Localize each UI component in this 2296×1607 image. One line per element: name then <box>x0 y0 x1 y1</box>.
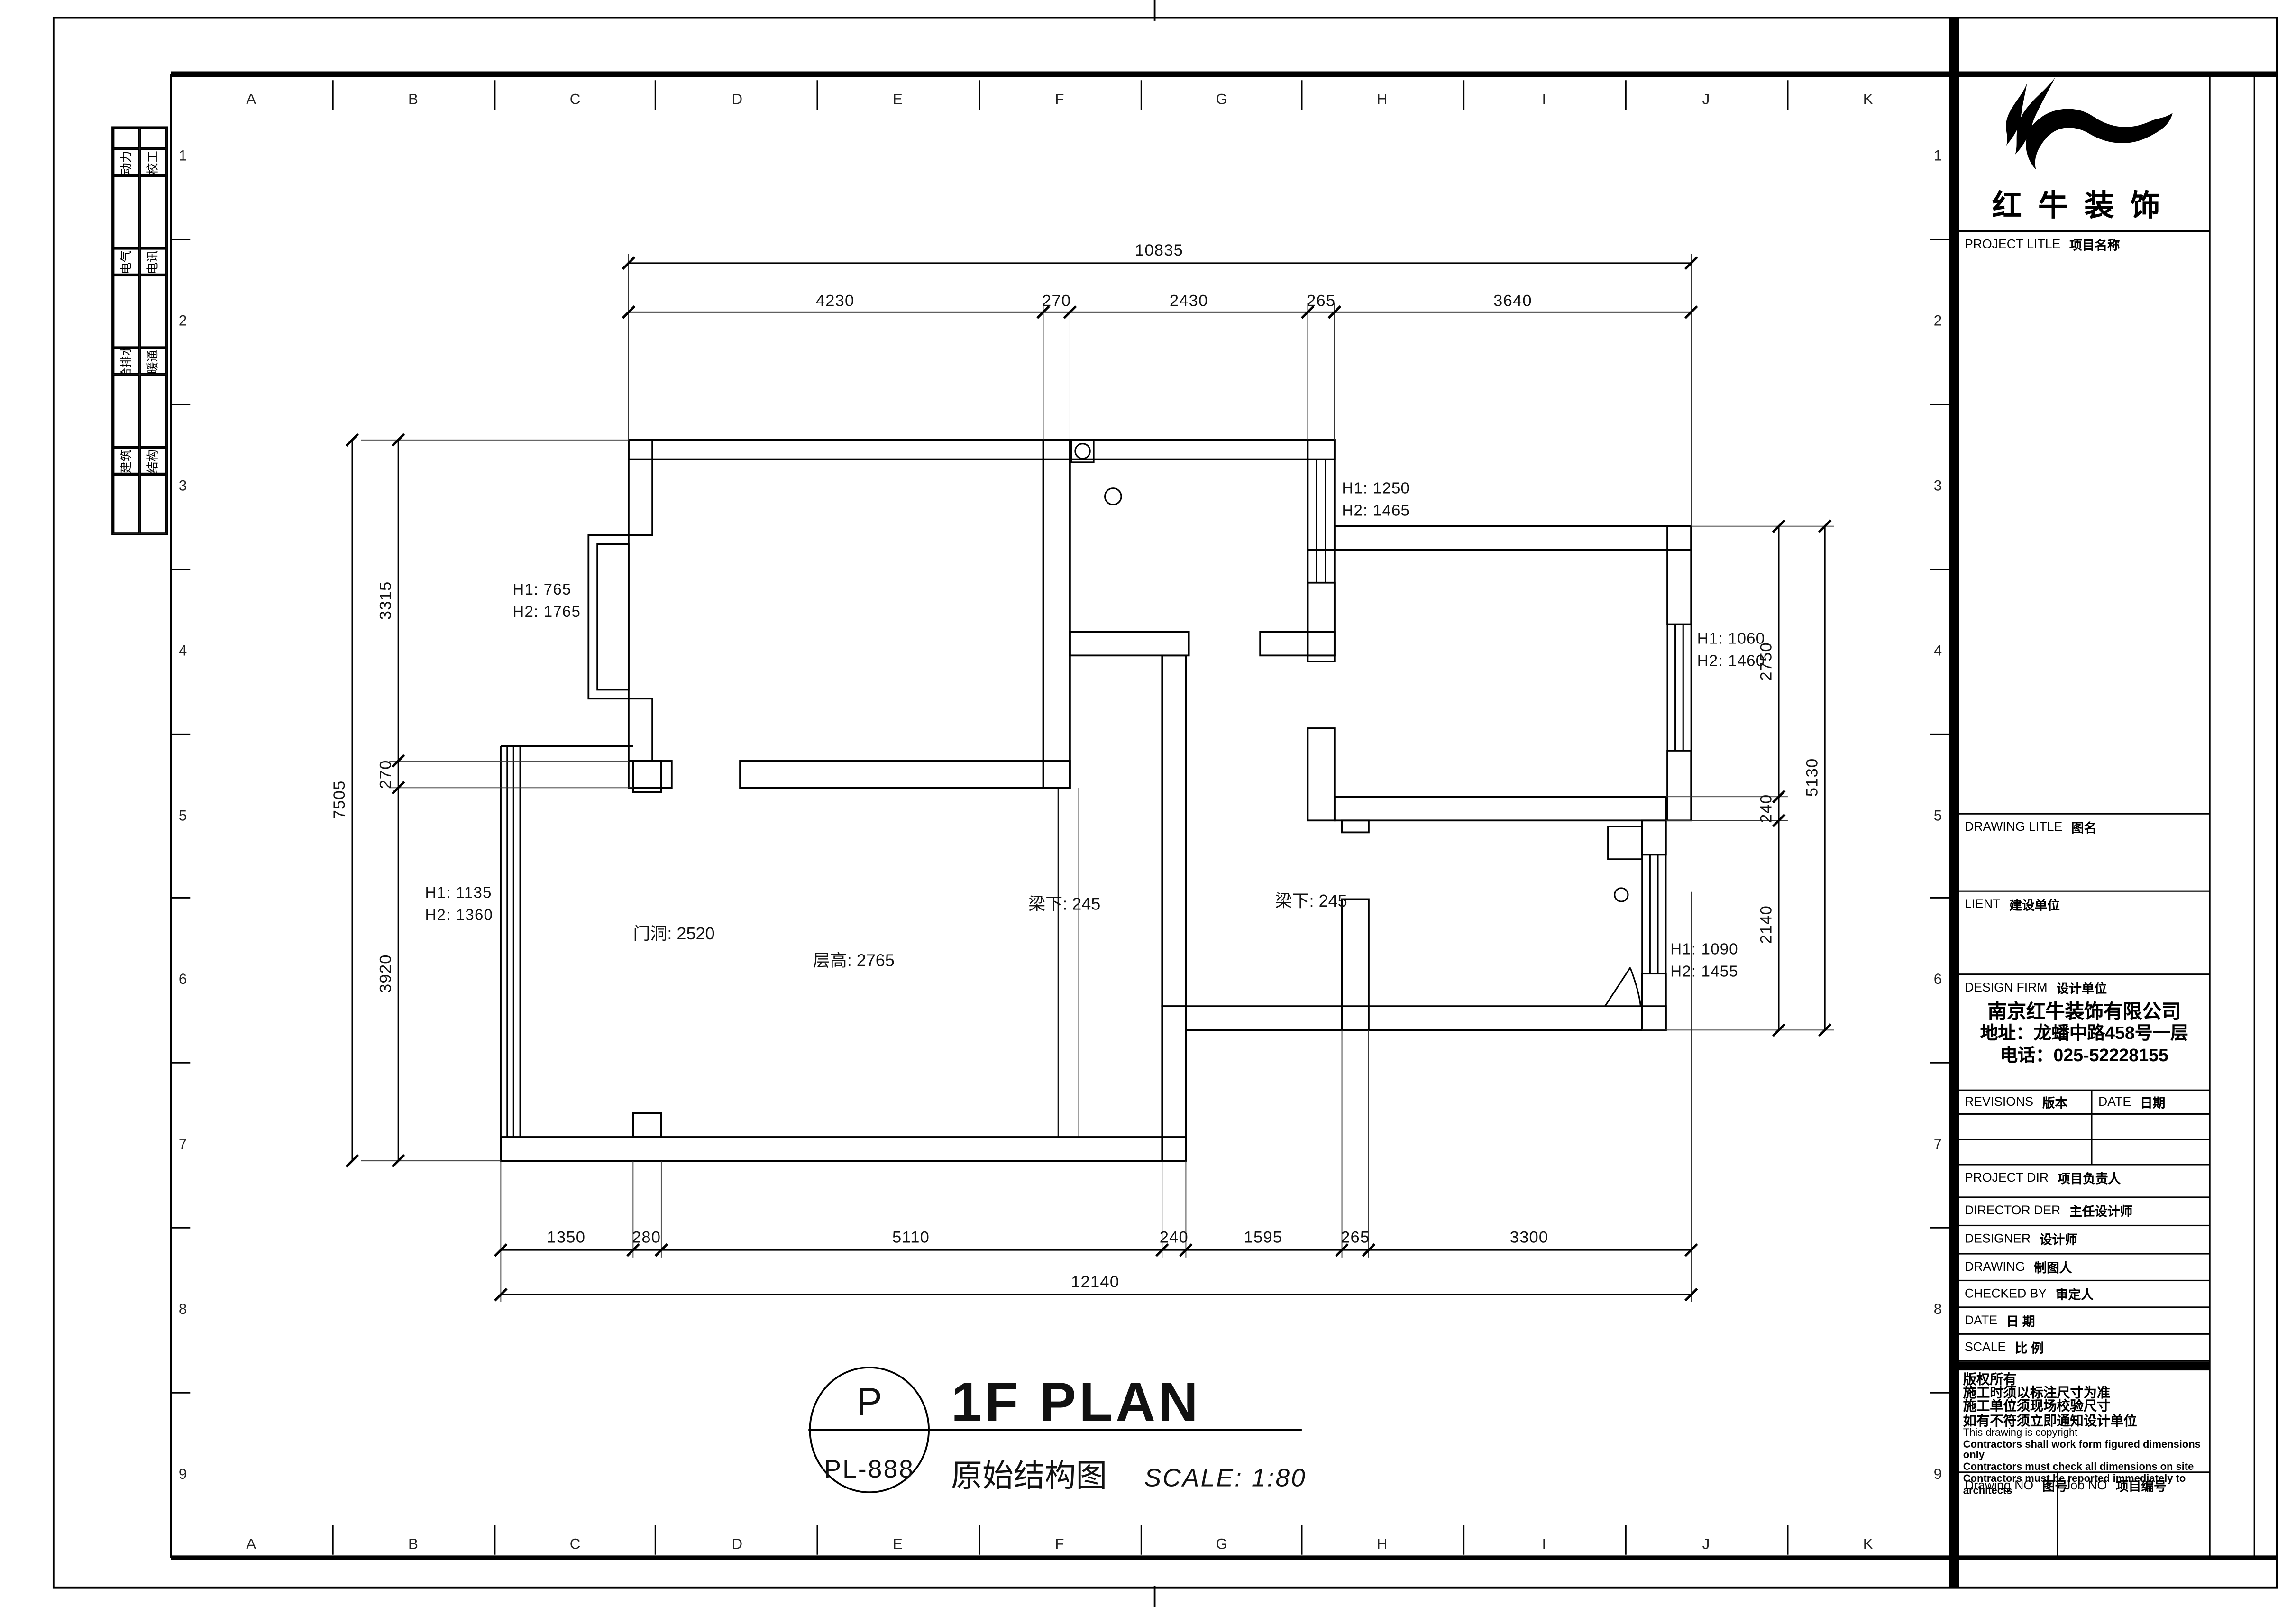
date-row: DATE 日 期 <box>1958 1308 2210 1334</box>
discipline-label: 结构 <box>145 449 161 473</box>
svg-text:9: 9 <box>179 1466 187 1482</box>
checked-by-row: CHECKED BY 审定人 <box>1958 1281 2210 1308</box>
dim-top-2: 270 <box>1042 292 1071 310</box>
label-window-bath-h1: H1: 1250 <box>1342 479 1410 497</box>
revisions-label-zh: 版本 <box>2042 1094 2067 1112</box>
label-floor-height: 层高: 2765 <box>813 950 895 970</box>
dimension-lines <box>352 263 1825 1295</box>
svg-text:6: 6 <box>1934 971 1942 987</box>
row-label-zh: 项目负责人 <box>2058 1170 2121 1188</box>
dimension-ticks <box>346 257 1830 1300</box>
copyright-line: 如有不符须立即通知设计单位 <box>1963 1414 2210 1428</box>
firm-address: 地址：龙蟠中路458号一层 <box>1958 1023 2210 1045</box>
drawing-title-zh: 原始结构图 <box>951 1458 1107 1493</box>
row-label-en: CHECKED BY <box>1965 1286 2047 1304</box>
svg-text:8: 8 <box>179 1301 187 1317</box>
company-name: 红牛装饰 <box>1958 181 2210 224</box>
discipline-label: 建筑 <box>118 449 134 473</box>
svg-text:I: I <box>1542 91 1546 107</box>
svg-text:4: 4 <box>179 642 187 659</box>
row-label-zh: 比 例 <box>2015 1339 2044 1357</box>
revisions-header: REVISIONS 版本 DATE 日期 <box>1958 1091 2210 1115</box>
label-window-balcony-h2: H2: 1360 <box>425 906 493 923</box>
project-title-zh: 项目名称 <box>2069 236 2120 254</box>
drawing-title-section: DRAWING LITLE 图名 <box>1958 815 2210 892</box>
firm-name: 南京红牛装饰有限公司 <box>1958 1001 2210 1023</box>
date-col-label-en: DATE <box>2098 1094 2131 1112</box>
dim-left-1: 3315 <box>376 581 394 620</box>
svg-text:B: B <box>408 1535 418 1552</box>
client-section: LIENT 建设单位 <box>1958 892 2210 975</box>
copyright-line: 施工单位须现场校验尺寸 <box>1963 1401 2210 1414</box>
job-no-label-en: Job NO <box>2064 1478 2107 1496</box>
svg-text:G: G <box>1216 91 1227 107</box>
dim-bottom-7: 3300 <box>1510 1229 1549 1247</box>
walls <box>501 440 1691 1161</box>
grid-numbers-left: 1 2 3 4 5 6 7 8 9 <box>179 147 187 1482</box>
svg-text:J: J <box>1702 91 1710 107</box>
svg-text:K: K <box>1863 91 1873 107</box>
drawing-no-label-en: Drawing NO <box>1965 1478 2033 1496</box>
dim-bottom-total: 12140 <box>1071 1273 1119 1291</box>
svg-text:D: D <box>732 91 742 107</box>
dim-top-5: 3640 <box>1493 292 1532 310</box>
row-label-en: DATE <box>1965 1313 1997 1331</box>
svg-text:3: 3 <box>179 477 187 494</box>
discipline-label: 暖通 <box>145 349 161 373</box>
dim-bottom-1: 1350 <box>547 1229 585 1247</box>
svg-text:A: A <box>246 91 256 107</box>
dim-bottom-3: 5110 <box>892 1229 930 1247</box>
label-window-kitchen-h1: H1: 1090 <box>1670 940 1738 957</box>
dim-left-3: 3920 <box>376 954 394 993</box>
project-dir-row: PROJECT DIR 项目负责人 <box>1958 1166 2210 1198</box>
drawing-title-label-zh: 图名 <box>2071 819 2096 837</box>
discipline-label: 电气 <box>118 250 134 274</box>
label-window-nw-h1: H1: 765 <box>512 580 571 598</box>
label-door-opening: 门洞: 2520 <box>633 924 714 943</box>
row-label-en: PROJECT DIR <box>1965 1170 2049 1188</box>
svg-text:D: D <box>732 1535 742 1552</box>
drawing-title-group: P PL-888 1F PLAN 原始结构图 SCALE: 1:80 <box>808 1368 1307 1493</box>
director-row: DIRECTOR DER 主任设计师 <box>1958 1198 2210 1226</box>
bath-drain <box>1105 488 1121 505</box>
svg-text:A: A <box>246 1535 256 1552</box>
company-logo: 红牛装饰 <box>1958 74 2210 232</box>
svg-text:2: 2 <box>179 312 187 329</box>
row-label-en: SCALE <box>1965 1339 2006 1357</box>
kitchen-niche <box>1608 826 1642 859</box>
svg-text:3: 3 <box>1934 477 1942 494</box>
dim-top-1: 4230 <box>816 292 855 310</box>
date-col-label-zh: 日期 <box>2140 1094 2165 1112</box>
project-title-section: PROJECT LITLE 项目名称 <box>1958 232 2210 815</box>
label-beam-right: 梁下: 245 <box>1275 891 1347 910</box>
label-window-kitchen-h2: H2: 1455 <box>1670 962 1738 980</box>
row-label-en: DIRECTOR DER <box>1965 1203 2060 1221</box>
row-label-zh: 主任设计师 <box>2069 1203 2132 1221</box>
extension-lines <box>361 254 1834 1302</box>
svg-text:5: 5 <box>1934 807 1942 824</box>
dim-bottom-6: 265 <box>1341 1229 1370 1247</box>
discipline-label: 动力 <box>118 150 134 174</box>
svg-text:K: K <box>1863 1535 1873 1552</box>
svg-text:C: C <box>570 1535 581 1552</box>
revisions-label-en: REVISIONS <box>1965 1094 2033 1112</box>
discipline-label: 校工 <box>145 150 161 174</box>
svg-text:I: I <box>1542 1535 1546 1552</box>
dim-bottom-2: 280 <box>632 1229 661 1247</box>
svg-text:H: H <box>1377 91 1388 107</box>
revision-row-empty <box>1958 1115 2210 1140</box>
revision-row-empty <box>1958 1140 2210 1165</box>
plan-annotations: H1: 765 H2: 1765 H1: 1135 H2: 1360 H1: 1… <box>425 479 1765 980</box>
grid-letters-top: A B C D E F G H I J K <box>246 91 1873 107</box>
dim-left-2: 270 <box>376 760 394 789</box>
firm-phone: 电话：025-52228155 <box>1958 1045 2210 1067</box>
dim-right-3: 2140 <box>1757 905 1775 944</box>
svg-text:5: 5 <box>179 807 187 824</box>
design-firm-section: DESIGN FIRM 设计单位 南京红牛装饰有限公司 地址：龙蟠中路458号一… <box>1958 975 2210 1091</box>
discipline-label: 电讯 <box>145 250 161 274</box>
dimension-texts: 10835 4230 270 2430 265 3640 1350 280 51… <box>330 241 1821 1291</box>
kitchen-door-swing <box>1605 968 1640 1006</box>
copyright-line: This drawing is copyright <box>1963 1428 2210 1440</box>
number-row: Drawing NO 图号 Job NO 项目编号 <box>1958 1471 2210 1558</box>
svg-text:G: G <box>1216 1535 1227 1552</box>
svg-text:9: 9 <box>1934 1466 1942 1482</box>
project-title-en: PROJECT LITLE <box>1965 236 2060 254</box>
grid-numbers-right: 1 2 3 4 5 6 7 8 9 <box>1934 147 1942 1482</box>
svg-text:E: E <box>893 1535 903 1552</box>
dim-bottom-5: 1595 <box>1244 1229 1283 1247</box>
dim-top-3: 2430 <box>1170 292 1208 310</box>
copyright-line: Contractors shall work form figured dime… <box>1963 1440 2210 1463</box>
svg-text:6: 6 <box>179 971 187 987</box>
title-block: 红牛装饰 PROJECT LITLE 项目名称 DRAWING LITLE 图名… <box>1958 74 2210 1558</box>
row-label-zh: 日 期 <box>2006 1313 2035 1331</box>
label-window-bed2-h2: H2: 1460 <box>1697 652 1765 669</box>
designer-row: DESIGNER 设计师 <box>1958 1226 2210 1255</box>
row-label-en: DRAWING <box>1965 1259 2025 1277</box>
dim-top-4: 265 <box>1307 292 1336 310</box>
svg-text:2: 2 <box>1934 312 1942 329</box>
design-firm-label-en: DESIGN FIRM <box>1965 980 2048 998</box>
bull-logo-icon <box>1973 74 2195 182</box>
dim-left-total: 7505 <box>330 781 348 819</box>
drawing-title-label-en: DRAWING LITLE <box>1965 819 2062 837</box>
client-label-en: LIENT <box>1965 896 2001 914</box>
kitchen-drain <box>1615 888 1628 901</box>
drawing-scale: SCALE: 1:80 <box>1144 1464 1307 1492</box>
svg-text:F: F <box>1055 1535 1064 1552</box>
svg-text:J: J <box>1702 1535 1710 1552</box>
label-window-bed2-h1: H1: 1060 <box>1697 629 1765 647</box>
fixtures <box>1071 440 1642 1006</box>
row-label-zh: 制图人 <box>2034 1259 2072 1277</box>
row-label-en: DESIGNER <box>1965 1231 2031 1249</box>
row-label-zh: 审定人 <box>2056 1286 2094 1304</box>
svg-text:H: H <box>1377 1535 1388 1552</box>
label-window-balcony-h1: H1: 1135 <box>425 883 492 901</box>
label-window-bath-h2: H2: 1465 <box>1342 502 1410 519</box>
design-firm-label-zh: 设计单位 <box>2056 980 2107 998</box>
title-bubble-letter: P <box>857 1380 882 1423</box>
svg-text:4: 4 <box>1934 642 1942 659</box>
svg-text:1: 1 <box>179 147 187 164</box>
label-beam-left: 梁下: 245 <box>1028 894 1100 913</box>
svg-text:B: B <box>408 91 418 107</box>
drawing-sheet: A B C D E F G H I J K A B C D E F G H I … <box>0 0 2296 1607</box>
label-window-nw-h2: H2: 1765 <box>512 603 581 620</box>
copyright-block: 版权所有 施工时须以标注尺寸为准 施工单位须现场校验尺寸 如有不符须立即通知设计… <box>1958 1370 2210 1471</box>
title-bubble-number: PL-888 <box>824 1455 915 1483</box>
door-jambs <box>633 632 1369 1113</box>
dim-top-total: 10835 <box>1135 241 1183 259</box>
client-label-zh: 建设单位 <box>2009 896 2060 914</box>
svg-text:E: E <box>893 91 903 107</box>
discipline-label: 给排水 <box>118 348 134 374</box>
svg-text:8: 8 <box>1934 1301 1942 1317</box>
row-label-zh: 设计师 <box>2040 1231 2077 1249</box>
job-no-label-zh: 项目编号 <box>2116 1478 2167 1496</box>
dim-bottom-4: 240 <box>1160 1229 1189 1247</box>
scale-row: SCALE 比 例 <box>1958 1335 2210 1361</box>
beam-lines <box>1058 788 1079 1137</box>
svg-text:F: F <box>1055 91 1064 107</box>
drawing-row: DRAWING 制图人 <box>1958 1255 2210 1281</box>
grid-letters-bottom: A B C D E F G H I J K <box>246 1535 1873 1552</box>
dim-right-2: 240 <box>1757 794 1775 823</box>
dim-right-total: 5130 <box>1803 758 1821 797</box>
divider-bar <box>1958 1361 2210 1370</box>
svg-text:C: C <box>570 91 581 107</box>
svg-text:1: 1 <box>1934 147 1942 164</box>
drawing-title-en: 1F PLAN <box>951 1371 1201 1433</box>
svg-text:7: 7 <box>1934 1136 1942 1152</box>
windows <box>501 459 1691 1137</box>
floor-plan-canvas: A B C D E F G H I J K A B C D E F G H I … <box>0 0 2296 1607</box>
discipline-strip: 动力 校工 电气 电讯 给排水 暖通 建筑 结构 <box>111 126 168 535</box>
svg-text:7: 7 <box>179 1136 187 1152</box>
